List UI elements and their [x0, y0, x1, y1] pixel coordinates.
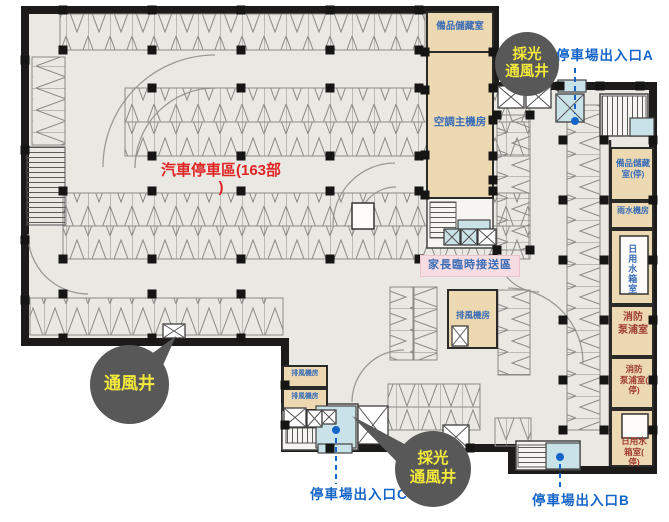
room-label-hvac: 空調主機房: [427, 116, 493, 129]
room-label-exhaust-mid: 排風機房: [450, 310, 496, 321]
room-label-storage-top: 備品儲藏室: [429, 21, 491, 33]
callout-light-vent-top: 採光 通風井: [495, 32, 559, 96]
entrance-label-a: 停車場出入口A: [556, 48, 654, 65]
room-label-fire-pump-parking: 消防 泵浦室( 停): [615, 364, 653, 396]
parking-area-annotation: 汽車停車區(163部 ): [146, 162, 296, 197]
room-label-storage-parking: 備品儲藏 室(停): [613, 158, 653, 179]
room-label-exhaust-1: 排風機房: [284, 370, 326, 378]
room-label-fire-pump: 消防 泵浦室: [613, 312, 653, 337]
callout-vent-shaft: 通風井: [90, 345, 169, 424]
room-label-rainwater: 雨水機房: [613, 206, 653, 216]
callout-light-vent-bottom: 採光 通風井: [395, 431, 471, 507]
floorplan-drawing: [0, 0, 669, 522]
room-label-daily-water: 日用水箱室: [626, 243, 637, 295]
room-label-daily-water-parking: 日用水 箱室( 停): [617, 436, 651, 468]
room-label-exhaust-2: 排風機房: [284, 393, 326, 401]
dropoff-zone-label: 家長臨時接送區: [420, 255, 520, 277]
floorplan-canvas: 備品儲藏室 空調主機房 備品儲藏 室(停) 雨水機房 日用水箱室 消防 泵浦室 …: [0, 0, 669, 522]
entrance-label-b: 停車場出入口B: [532, 493, 630, 510]
entrance-label-c: 停車場出入口C: [310, 487, 408, 504]
